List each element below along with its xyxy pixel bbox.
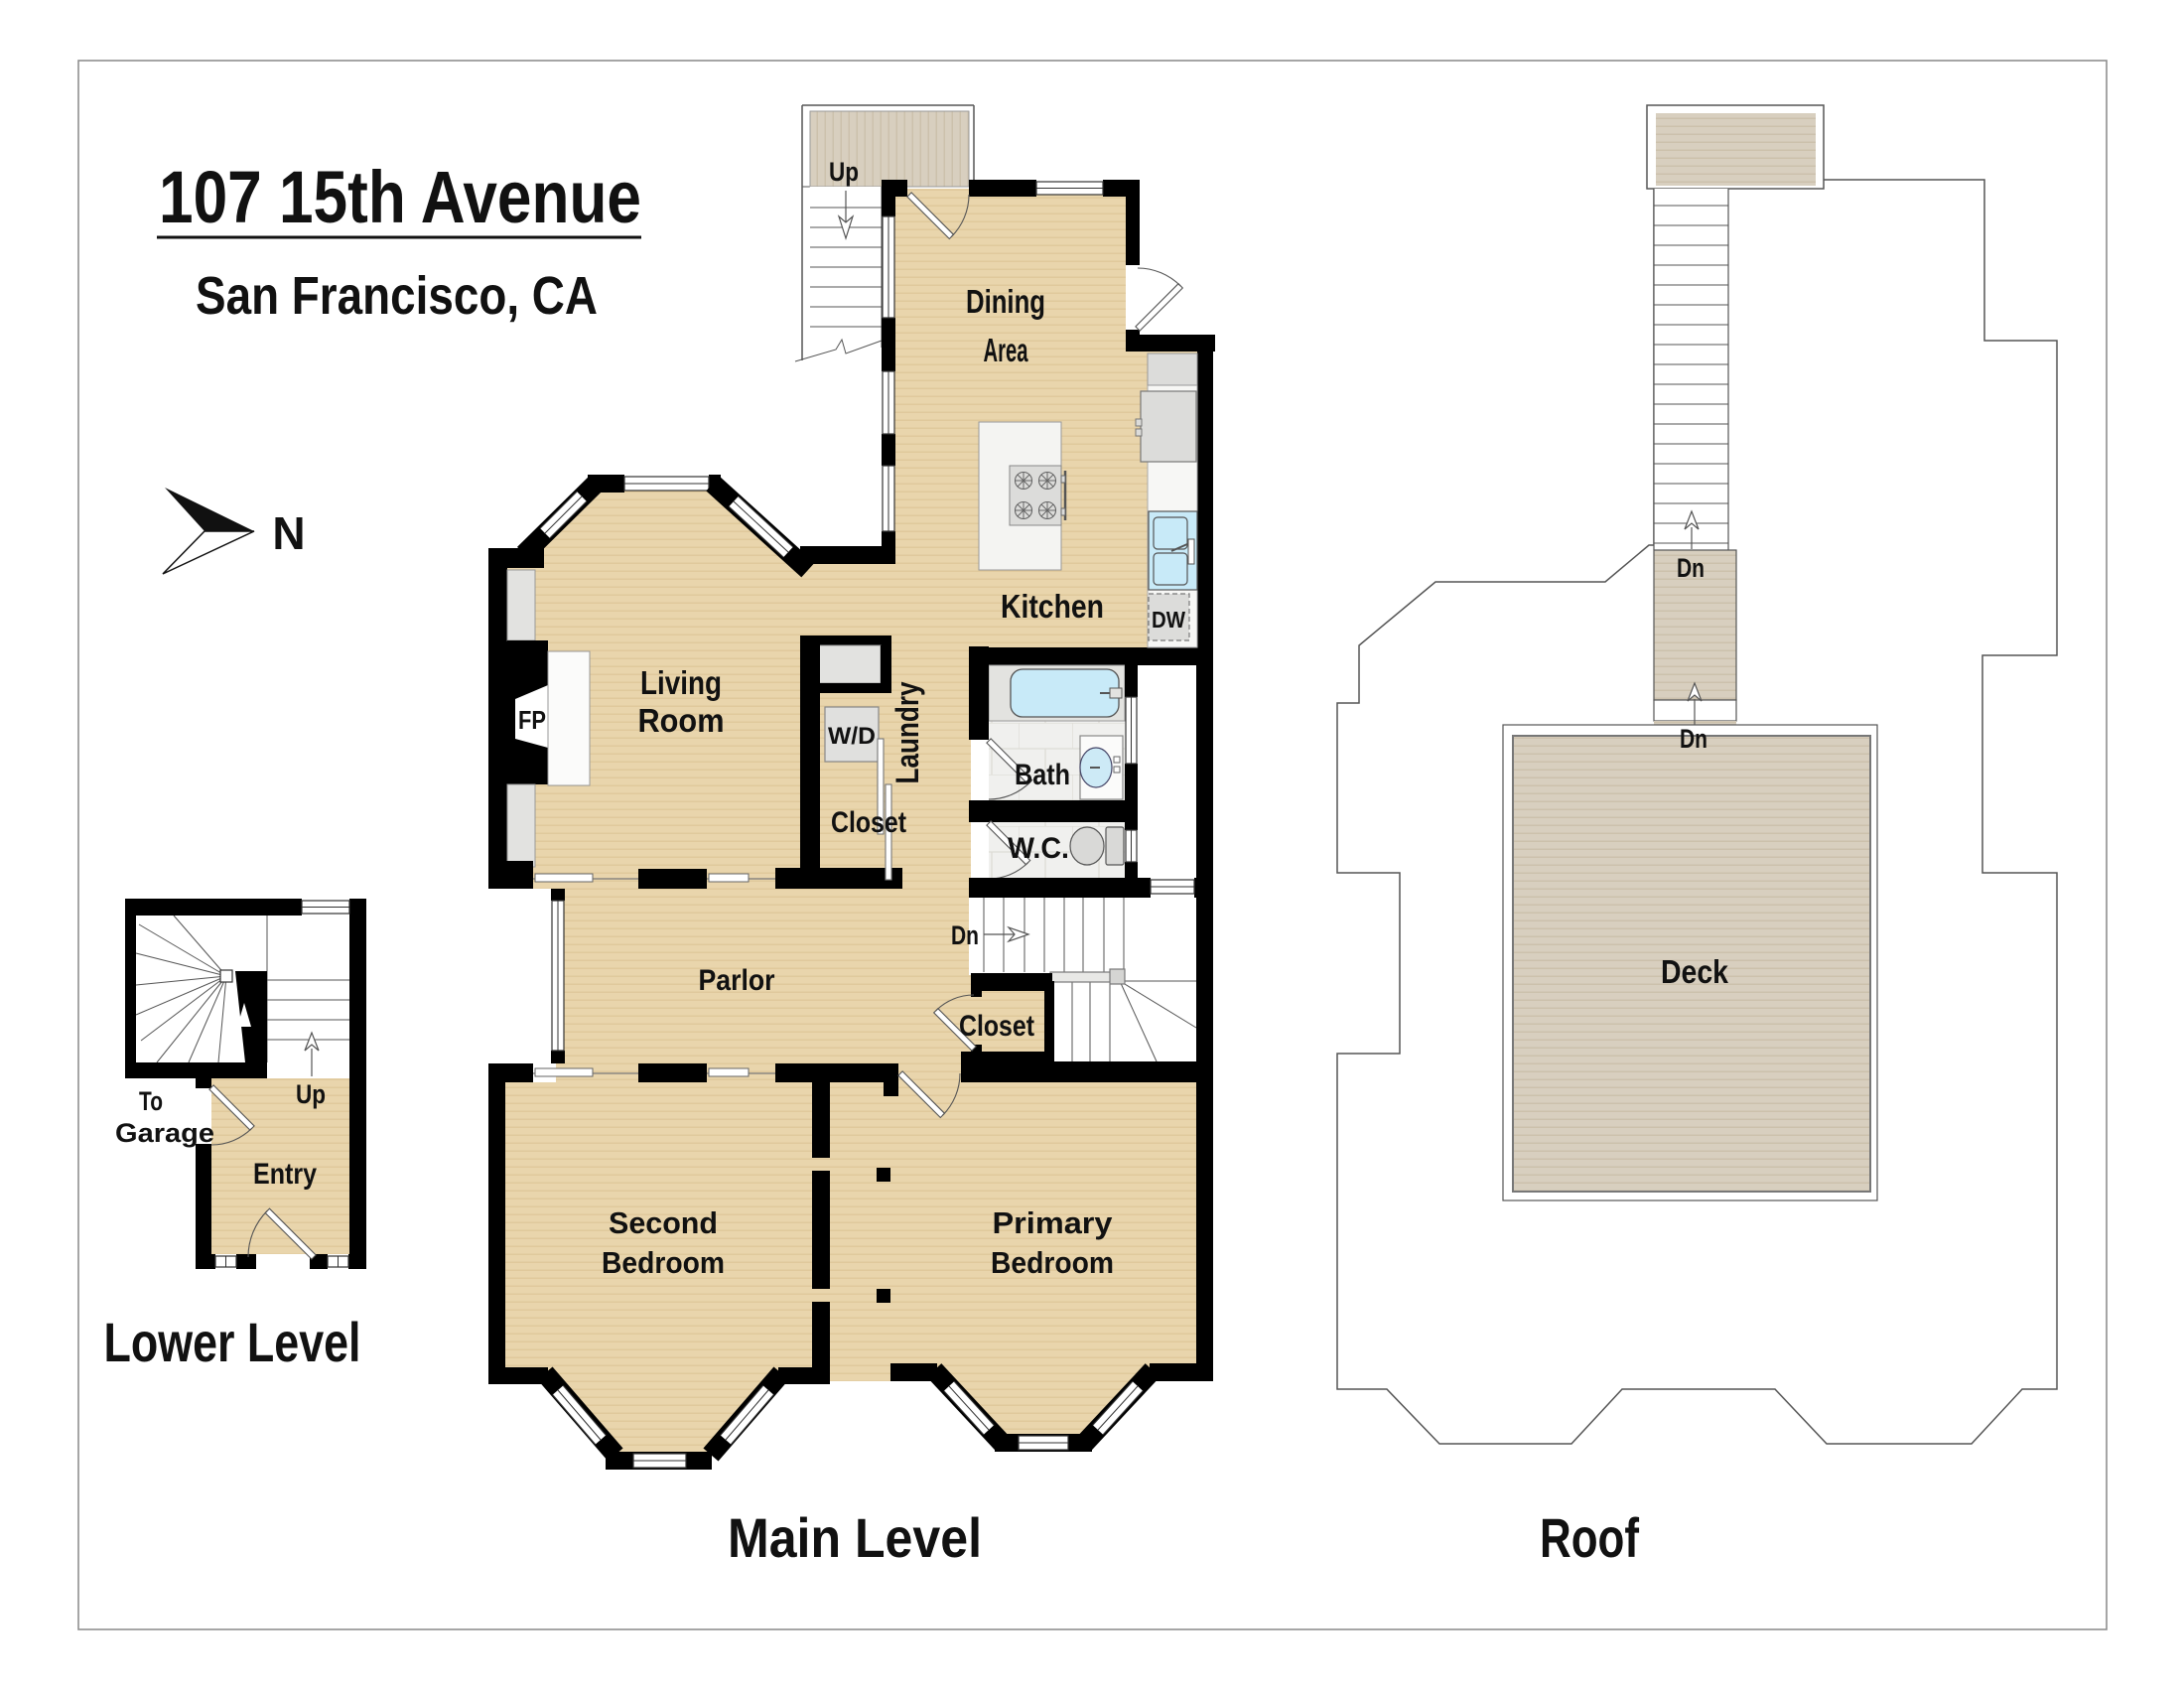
svg-text:Dn: Dn	[951, 920, 979, 950]
svg-text:Living: Living	[640, 664, 722, 701]
svg-text:Dn: Dn	[1680, 724, 1707, 754]
svg-text:Main Level: Main Level	[728, 1506, 982, 1569]
svg-text:Primary: Primary	[993, 1205, 1114, 1240]
svg-text:Bedroom: Bedroom	[602, 1245, 725, 1280]
svg-text:N: N	[272, 507, 305, 559]
svg-text:Kitchen: Kitchen	[1001, 588, 1104, 625]
svg-text:Bath: Bath	[1015, 759, 1070, 791]
svg-text:Deck: Deck	[1661, 953, 1729, 990]
svg-text:107 15th Avenue: 107 15th Avenue	[159, 156, 641, 238]
svg-text:Up: Up	[829, 157, 859, 187]
svg-text:Up: Up	[296, 1079, 326, 1109]
svg-text:Second: Second	[609, 1205, 718, 1240]
svg-text:Dn: Dn	[1677, 553, 1705, 583]
svg-text:Room: Room	[638, 702, 725, 739]
svg-text:Closet: Closet	[831, 806, 906, 839]
svg-text:Closet: Closet	[959, 1010, 1034, 1043]
svg-text:San Francisco, CA: San Francisco, CA	[196, 266, 598, 326]
svg-text:Entry: Entry	[253, 1158, 317, 1191]
svg-text:W.C.: W.C.	[1008, 832, 1069, 865]
svg-text:Bedroom: Bedroom	[991, 1245, 1114, 1280]
svg-text:W/D: W/D	[828, 723, 876, 750]
svg-text:Dining: Dining	[966, 283, 1045, 320]
svg-text:Lower Level: Lower Level	[104, 1311, 361, 1373]
svg-text:Roof: Roof	[1540, 1506, 1639, 1569]
svg-text:Area: Area	[984, 332, 1028, 368]
svg-text:FP: FP	[518, 705, 546, 735]
svg-text:To: To	[139, 1086, 163, 1116]
svg-text:Parlor: Parlor	[699, 964, 775, 997]
svg-text:Laundry: Laundry	[889, 681, 925, 783]
svg-text:DW: DW	[1152, 607, 1185, 633]
svg-text:Garage: Garage	[115, 1118, 214, 1148]
